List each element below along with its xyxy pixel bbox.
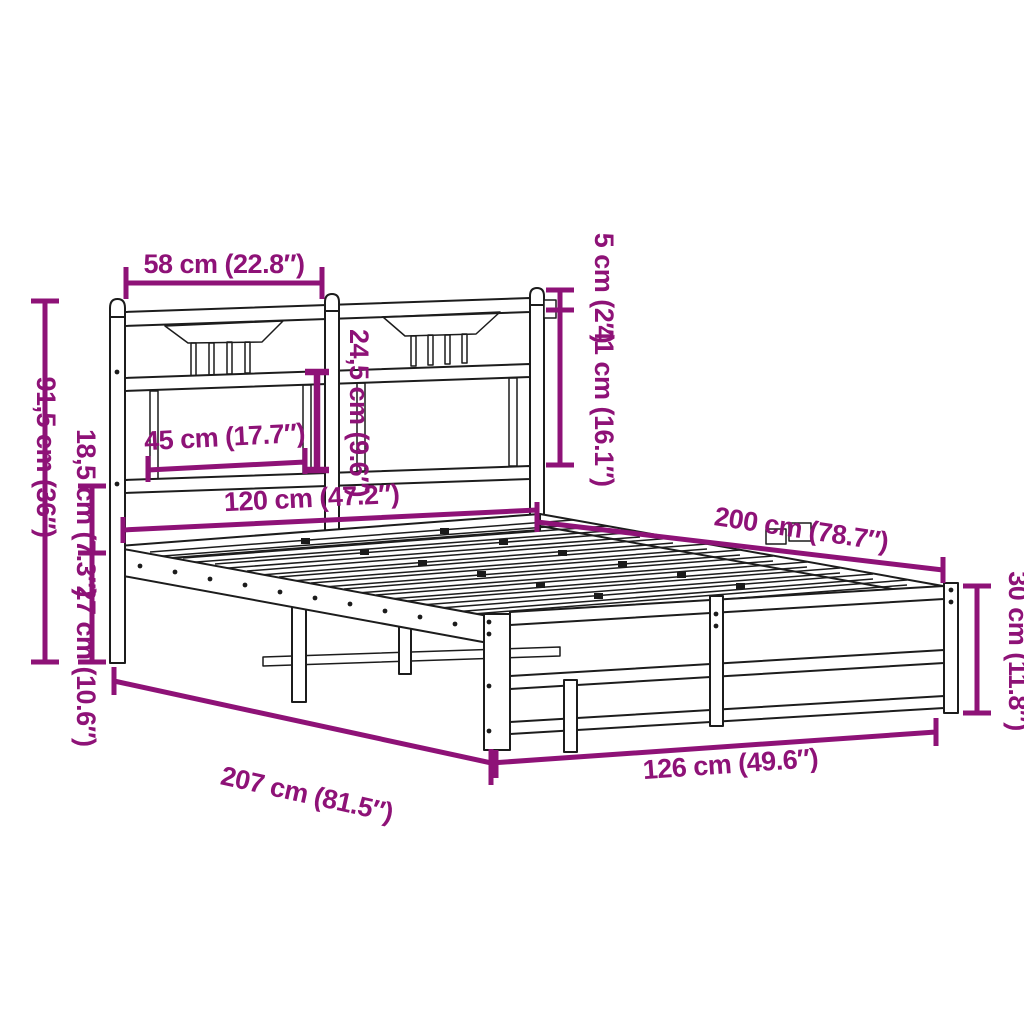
dimension-footboard-height: 30 cm (11.8″) (963, 571, 1024, 731)
dimension-headboard-height: 91,5 cm (36″) (31, 301, 61, 662)
footboard (484, 583, 958, 752)
dimension-label: 24,5 cm (9.6″) (344, 329, 374, 497)
support-leg-front (292, 604, 306, 702)
dimension-label: 18,5 cm (7.3″) (71, 429, 101, 597)
headboard-ornament-left-slats (191, 342, 250, 376)
dimension-cap-and-upper-height: 5 cm (2″) 41 cm (16.1″) (546, 233, 619, 487)
headboard-middle-post-cap (325, 294, 339, 311)
post-bolt-hole (115, 482, 120, 487)
dimension-label: 41 cm (16.1″) (589, 325, 619, 486)
headboard-right-post-cap (530, 288, 544, 305)
dimension-label: 91,5 cm (36″) (31, 376, 61, 537)
headboard-right-post (530, 305, 544, 526)
bed-frame-dimension-diagram: 58 cm (22.8″) 91,5 cm (36″) 18,5 cm (7.3… (0, 0, 1024, 1024)
headboard-left-post-group (110, 299, 125, 663)
headboard-ornament-right-slats (411, 334, 467, 366)
headboard-left-post (110, 317, 125, 663)
dimension-label: 207 cm (81.5″) (218, 761, 396, 828)
dimension-label: 27 cm (10.6″) (71, 585, 101, 746)
dimension-bed-length: 200 cm (78.7″) (537, 501, 943, 583)
headboard-left-post-cap (110, 299, 125, 317)
dimension-panel-width: 45 cm (17.7″) (143, 418, 305, 482)
dimension-diagram-page: 58 cm (22.8″) 91,5 cm (36″) 18,5 cm (7.3… (0, 0, 1024, 1024)
post-bolt-hole (115, 370, 120, 375)
dimension-label: 30 cm (11.8″) (1003, 571, 1024, 731)
footboard-inner-leg (564, 680, 577, 752)
support-leg-inner (399, 624, 411, 674)
dimension-headboard-bottom-gap-and-leg: 18,5 cm (7.3″) 27 cm (10.6″) (71, 429, 106, 747)
dimension-label: 45 cm (17.7″) (143, 418, 305, 456)
dimension-label: 58 cm (22.8″) (143, 249, 304, 279)
dimension-headboard-section-width: 58 cm (22.8″) (126, 249, 322, 299)
